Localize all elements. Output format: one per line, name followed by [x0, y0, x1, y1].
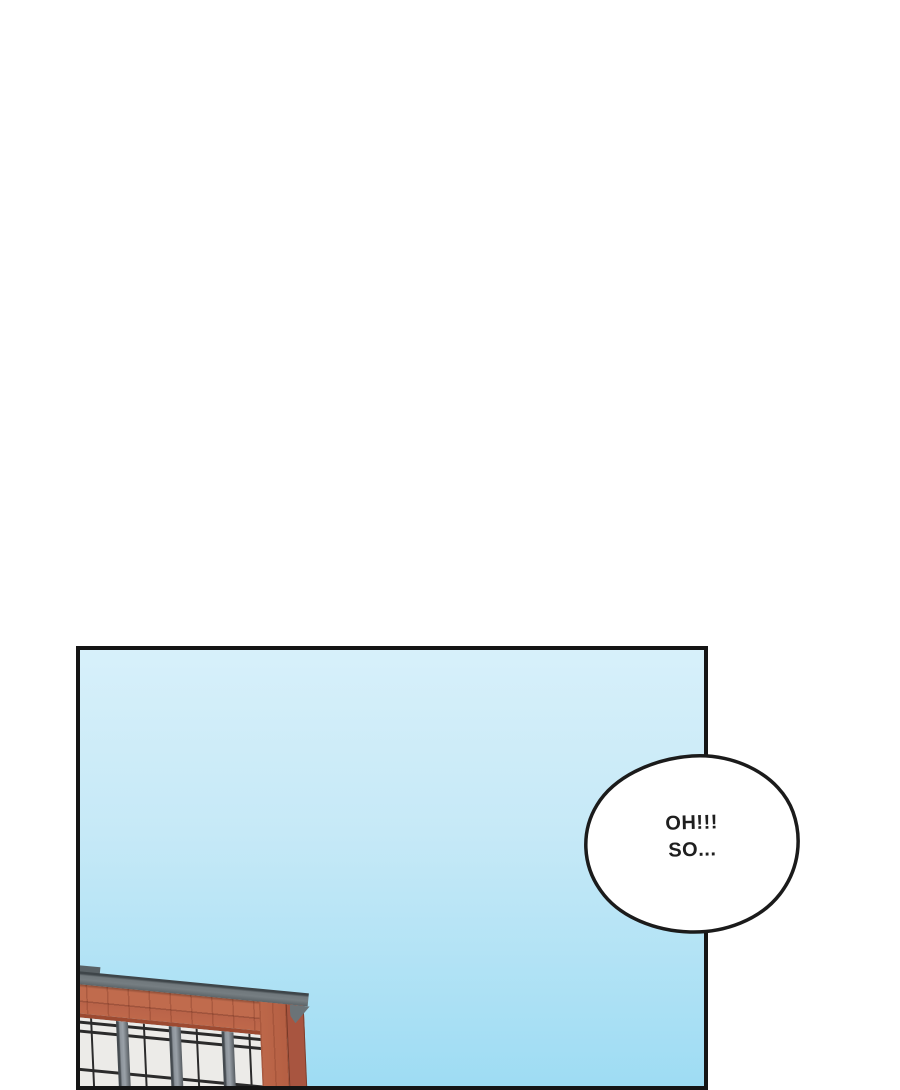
- building: [76, 970, 355, 1090]
- window-mullion-3: [221, 1031, 242, 1090]
- speech-bubble-text: OH!!! SO...: [571, 807, 812, 867]
- window-mullion-2: [169, 1026, 190, 1090]
- page-background: OH!!! SO...: [0, 0, 900, 1080]
- speech-bubble: OH!!! SO...: [572, 748, 812, 940]
